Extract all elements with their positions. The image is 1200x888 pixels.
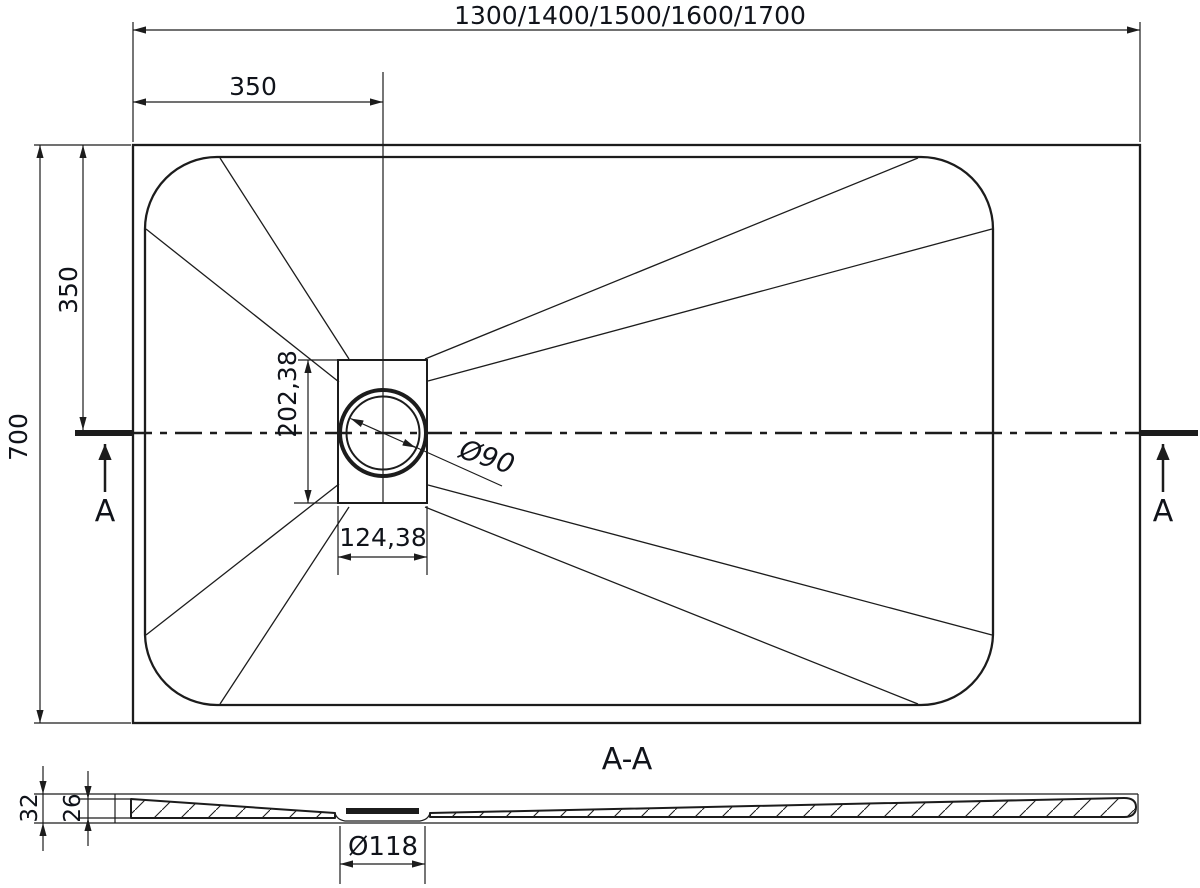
section-marker-a-left: A [95, 494, 116, 529]
dim-32-label: 32 [17, 793, 43, 822]
dim-26-label: 26 [60, 793, 86, 822]
section-marker-a-right: A [1153, 494, 1174, 529]
dim-700-label: 700 [4, 413, 33, 461]
dim-drain-offset-left: 350 [133, 72, 383, 102]
top-view: A A 1300/1400/1500/1600/1700 350 700 350 [4, 1, 1198, 723]
section-title: A-A [602, 742, 653, 777]
drain-flange [346, 808, 419, 814]
section-cut-markers: A A [75, 433, 1198, 529]
technical-drawing-shower-tray: A A 1300/1400/1500/1600/1700 350 700 350 [0, 0, 1200, 888]
dim-overall-length: 1300/1400/1500/1600/1700 [133, 1, 1140, 142]
dim-recess-diameter: Ø118 [340, 826, 425, 884]
section-view: A-A 32 26 [17, 742, 1138, 884]
dim-diameter-90-label: Ø90 [455, 434, 518, 481]
dim-202-38-label: 202,38 [273, 350, 302, 437]
section-core-left [131, 799, 335, 818]
section-core-right [430, 798, 1136, 817]
dim-length-options-label: 1300/1400/1500/1600/1700 [454, 1, 806, 30]
dim-350-left-label: 350 [54, 266, 83, 314]
section-drain-recess [335, 808, 430, 821]
dim-diameter-118-label: Ø118 [348, 832, 418, 862]
dim-124-38-label: 124,38 [339, 523, 426, 552]
drawing-canvas: A A 1300/1400/1500/1600/1700 350 700 350 [0, 0, 1200, 888]
dim-section-base-height: 26 [60, 771, 131, 846]
dim-350-top-label: 350 [229, 72, 277, 101]
dim-drain-box-width: 124,38 [338, 506, 427, 575]
dim-center-offset-top: 350 [54, 145, 83, 430]
